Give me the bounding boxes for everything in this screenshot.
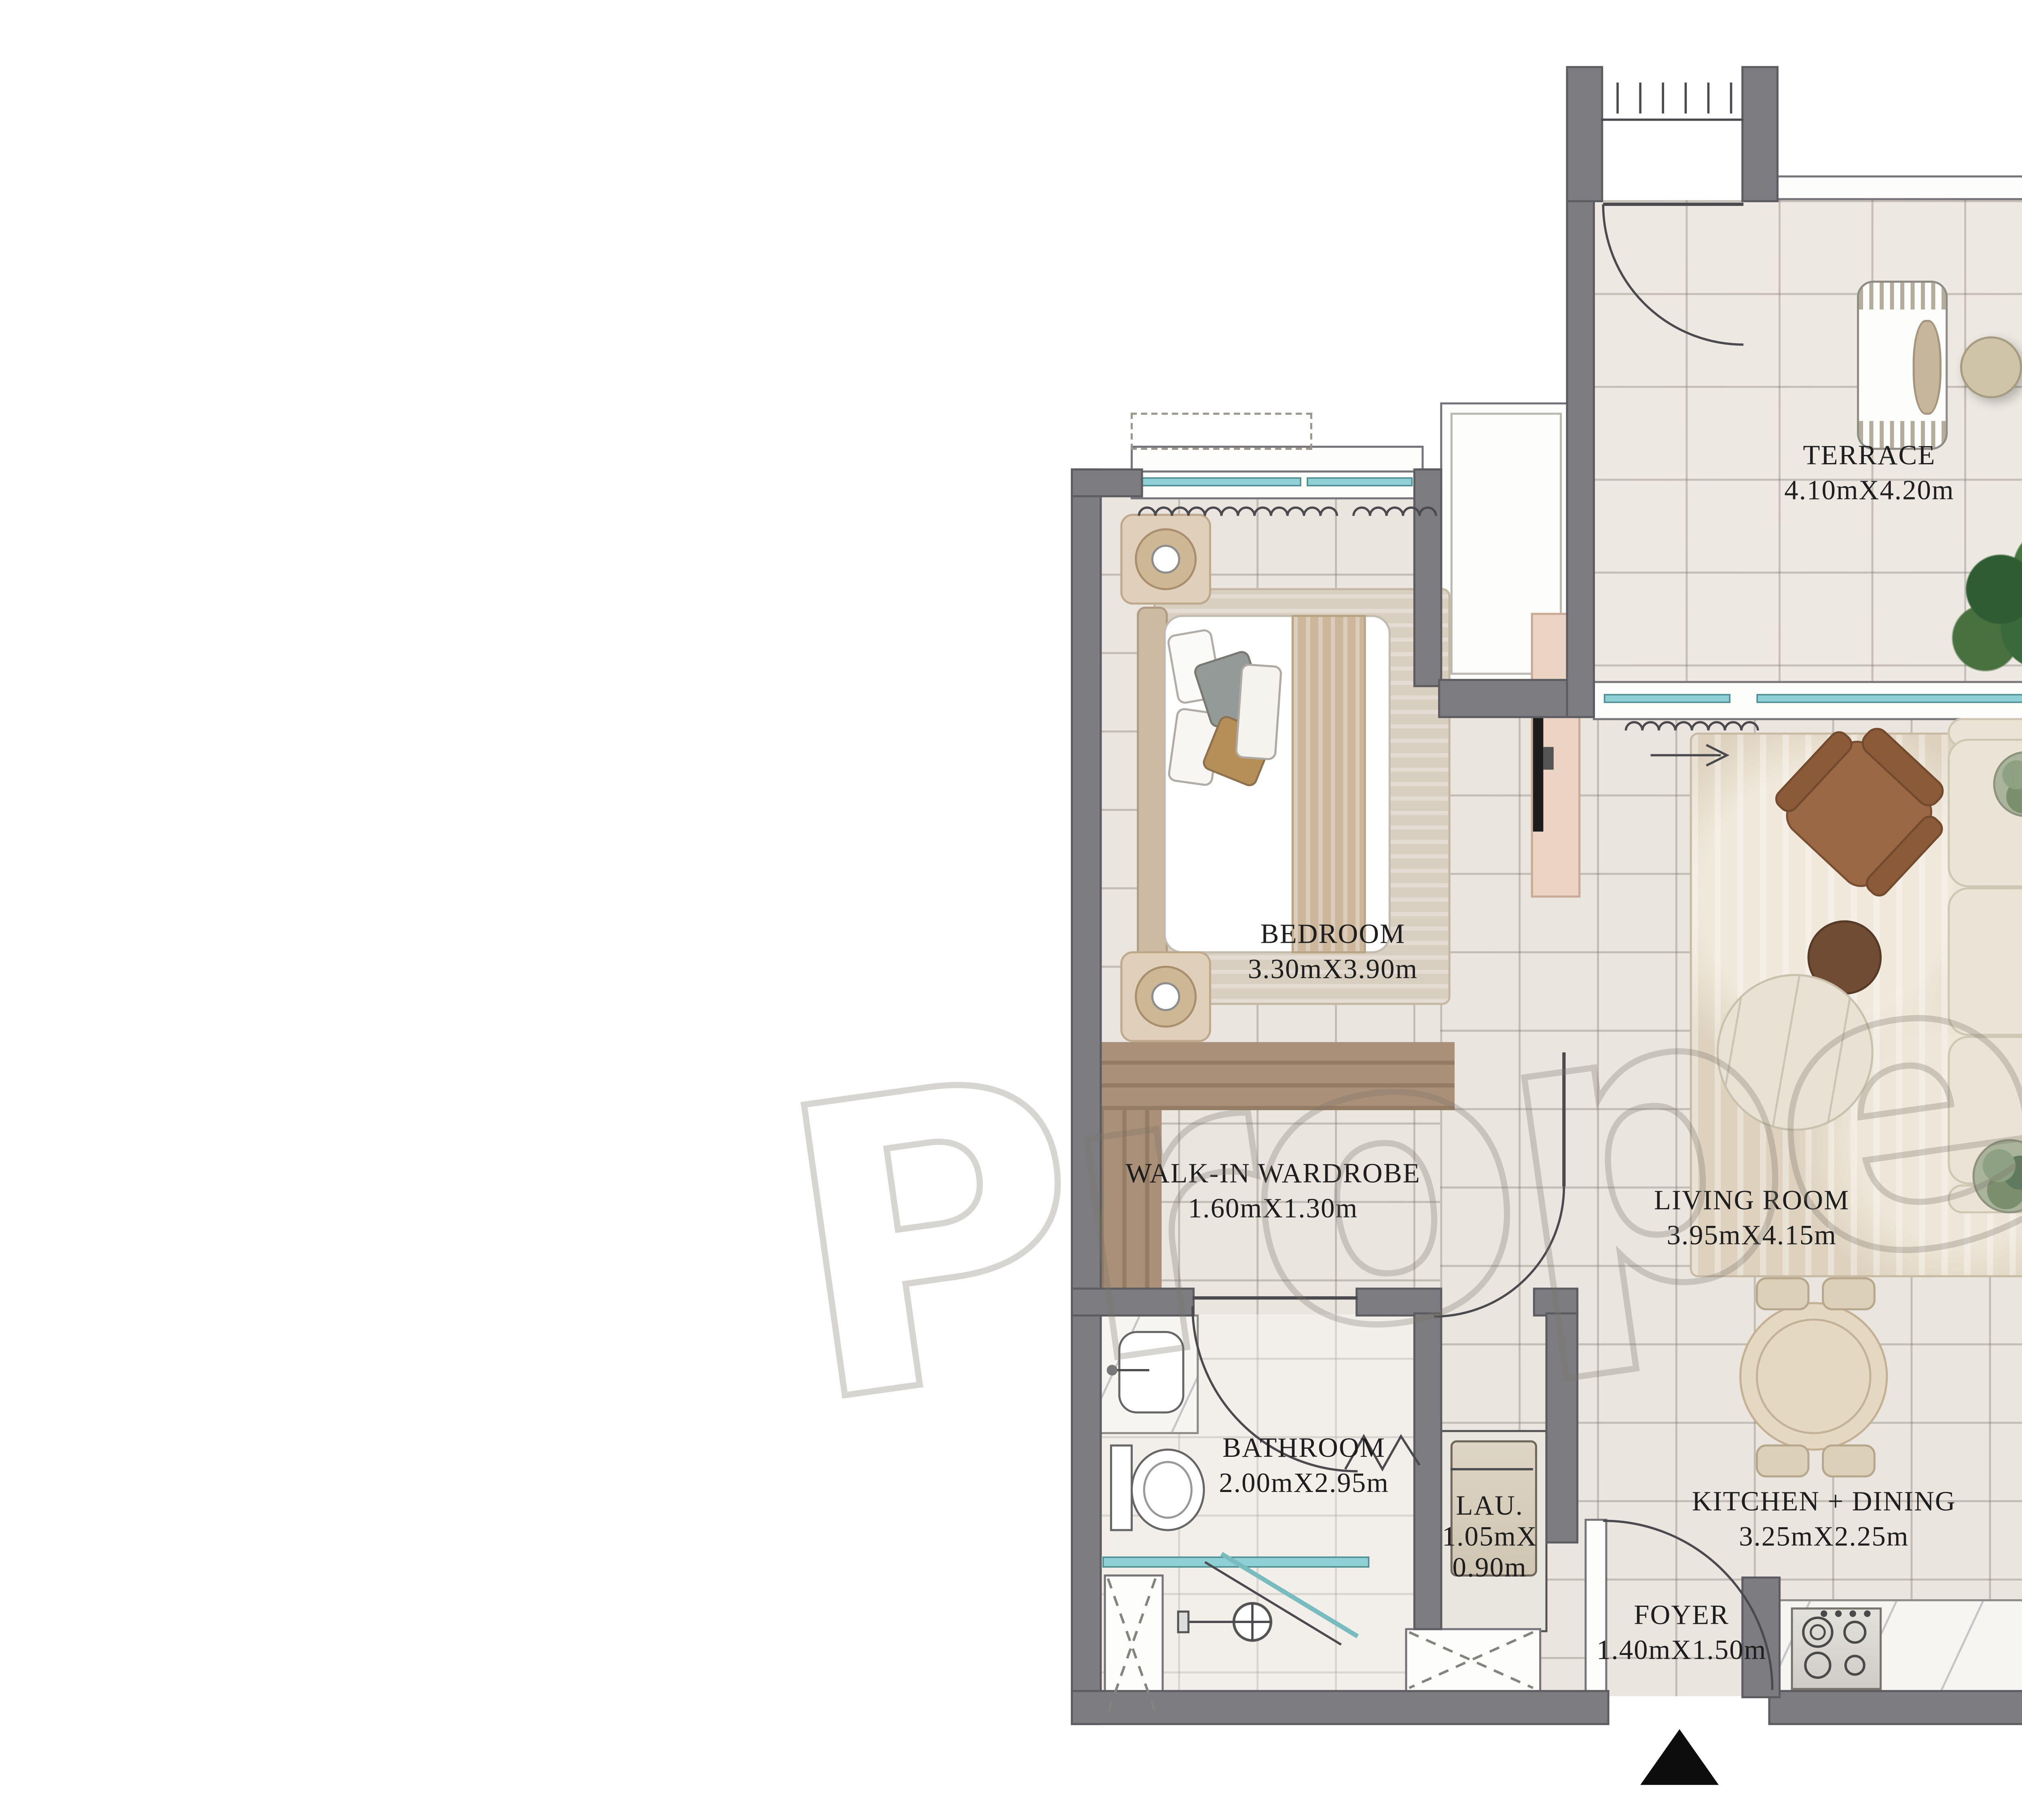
wardrobe-label: WALK-IN WARDROBE 1.60mX1.30m bbox=[1125, 1155, 1421, 1225]
foyer-label: FOYER 1.40mX1.50m bbox=[1597, 1597, 1766, 1667]
laundry-name: LAU. bbox=[1442, 1490, 1538, 1521]
bathroom-name: BATHROOM bbox=[1219, 1430, 1389, 1465]
terrace-dims: 4.10mX4.20m bbox=[1784, 472, 1954, 508]
kitchen-dining-label: KITCHEN + DINING 3.25mX2.25m bbox=[1692, 1484, 1956, 1553]
wardrobe-dims: 1.60mX1.30m bbox=[1125, 1191, 1421, 1226]
floor-plan: TERRACE 4.10mX4.20m BEDROOM 3.30mX3.90m … bbox=[0, 0, 2022, 1820]
terrace-label: TERRACE 4.10mX4.20m bbox=[1784, 438, 1954, 508]
kitchen-dining-dims: 3.25mX2.25m bbox=[1692, 1519, 1956, 1554]
living-room-label: LIVING ROOM 3.95mX4.15m bbox=[1654, 1182, 1850, 1252]
bedroom-dims: 3.30mX3.90m bbox=[1248, 951, 1418, 986]
foyer-dims: 1.40mX1.50m bbox=[1597, 1632, 1766, 1668]
laundry-label: LAU. 1.05mX 0.90m bbox=[1442, 1490, 1538, 1583]
bathroom-dims: 2.00mX2.95m bbox=[1219, 1465, 1389, 1500]
living-room-dims: 3.95mX4.15m bbox=[1654, 1217, 1850, 1253]
laundry-dims-1: 1.05mX bbox=[1442, 1521, 1538, 1552]
wardrobe-name: WALK-IN WARDROBE bbox=[1125, 1155, 1421, 1191]
kitchen-dining-name: KITCHEN + DINING bbox=[1692, 1484, 1956, 1519]
bathroom-label: BATHROOM 2.00mX2.95m bbox=[1219, 1430, 1389, 1500]
bedroom-label: BEDROOM 3.30mX3.90m bbox=[1248, 916, 1418, 986]
bedroom-name: BEDROOM bbox=[1248, 916, 1418, 951]
terrace-name: TERRACE bbox=[1784, 438, 1954, 473]
laundry-dims-2: 0.90m bbox=[1442, 1552, 1538, 1583]
foyer-name: FOYER bbox=[1597, 1597, 1766, 1632]
living-room-name: LIVING ROOM bbox=[1654, 1182, 1850, 1217]
